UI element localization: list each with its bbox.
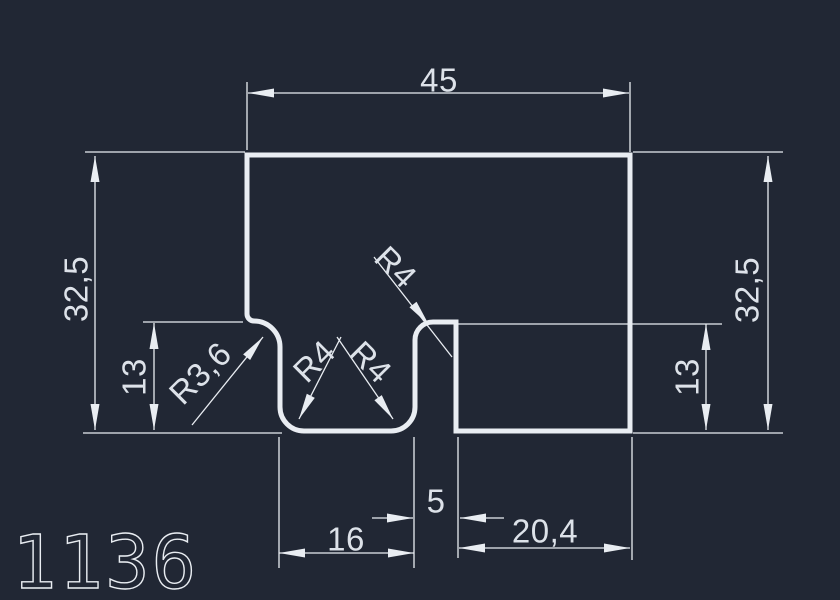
part-number: 1136 [12,520,198,600]
dim-label-bottom-right-width: 20,4 [512,513,578,550]
dim-label-top-width: 45 [420,62,458,99]
dim-label-groove-width: 16 [327,521,365,558]
dim-label-right-height: 32,5 [729,257,766,323]
dim-label-left-height: 32,5 [58,256,95,322]
dim-label-left-step: 13 [116,358,153,396]
cad-drawing-canvas: 45 32,5 13 32,5 13 16 5 20,4 R3,6 R4 R4 … [0,0,840,600]
dim-label-slot-width: 5 [427,483,446,520]
dim-label-right-step: 13 [669,358,706,396]
